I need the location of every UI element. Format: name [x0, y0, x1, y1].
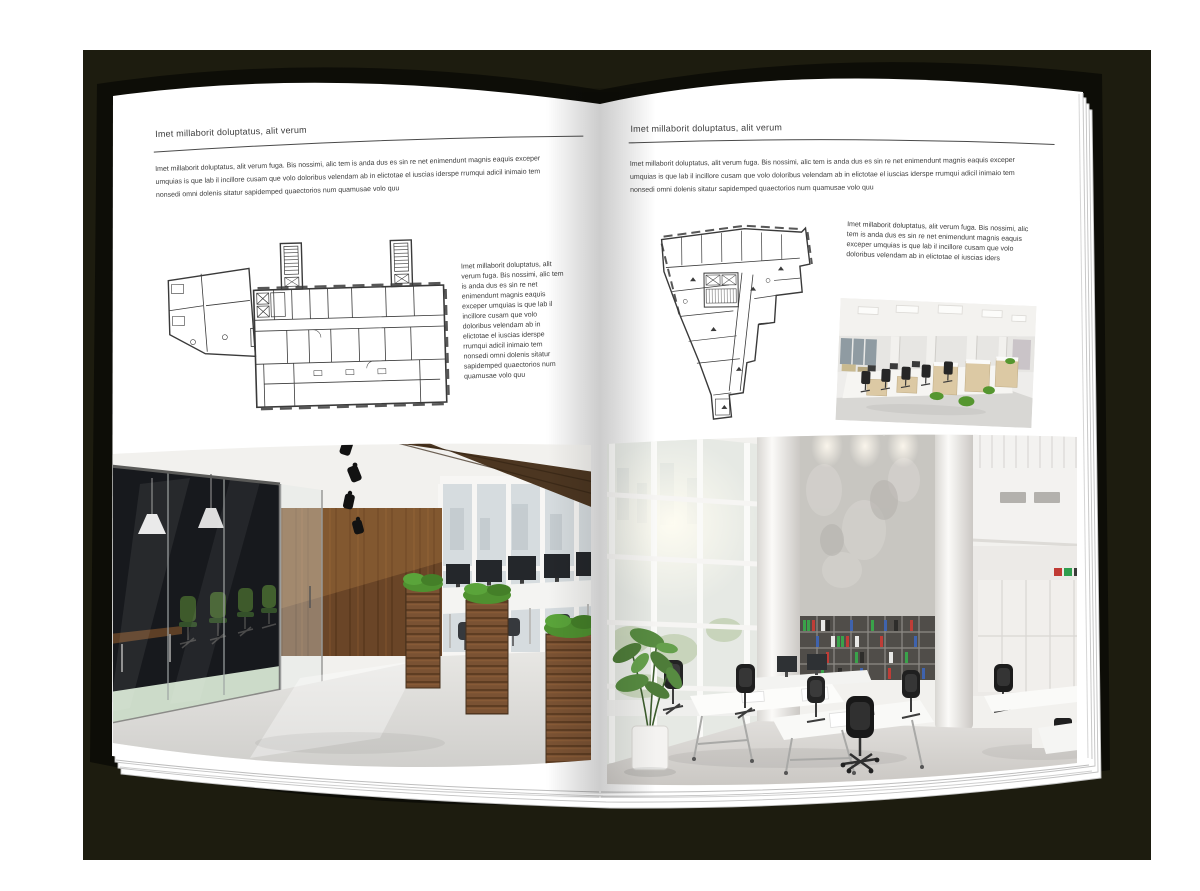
- elevator-core-icon: [257, 292, 286, 317]
- magazine-spread-mockup: Imet millaborit doluptatus, alit verum I…: [0, 0, 1200, 891]
- left-page-title: Imet millaborit doluptatus, alit verum: [155, 125, 307, 139]
- small-office-scene: [836, 298, 1037, 428]
- right-page-title: Imet millaborit doluptatus, alit verum: [630, 122, 782, 134]
- right-page-intro: Imet millaborit doluptatus, alit verum f…: [630, 154, 1022, 198]
- left-page-content: Imet millaborit doluptatus, alit verum I…: [120, 79, 609, 792]
- left-floor-plan: [160, 227, 457, 418]
- right-floor-plan: [649, 220, 841, 424]
- stair-tower-icon: [280, 243, 302, 290]
- left-page-side-text: Imet millaborit doluptatus, alit verum f…: [461, 260, 568, 383]
- right-page-annotation: Imet millaborit doluptatus, alit verum f…: [846, 220, 1031, 265]
- right-header-rule: [629, 133, 1055, 151]
- right-small-photo: [836, 298, 1037, 428]
- stair-tower-icon: [390, 240, 412, 287]
- right-page-content: Imet millaborit doluptatus, alit verum I…: [622, 81, 1101, 786]
- left-page-intro: Imet millaborit doluptatus, alit verum f…: [155, 152, 544, 202]
- elevator-core-icon: [704, 273, 738, 307]
